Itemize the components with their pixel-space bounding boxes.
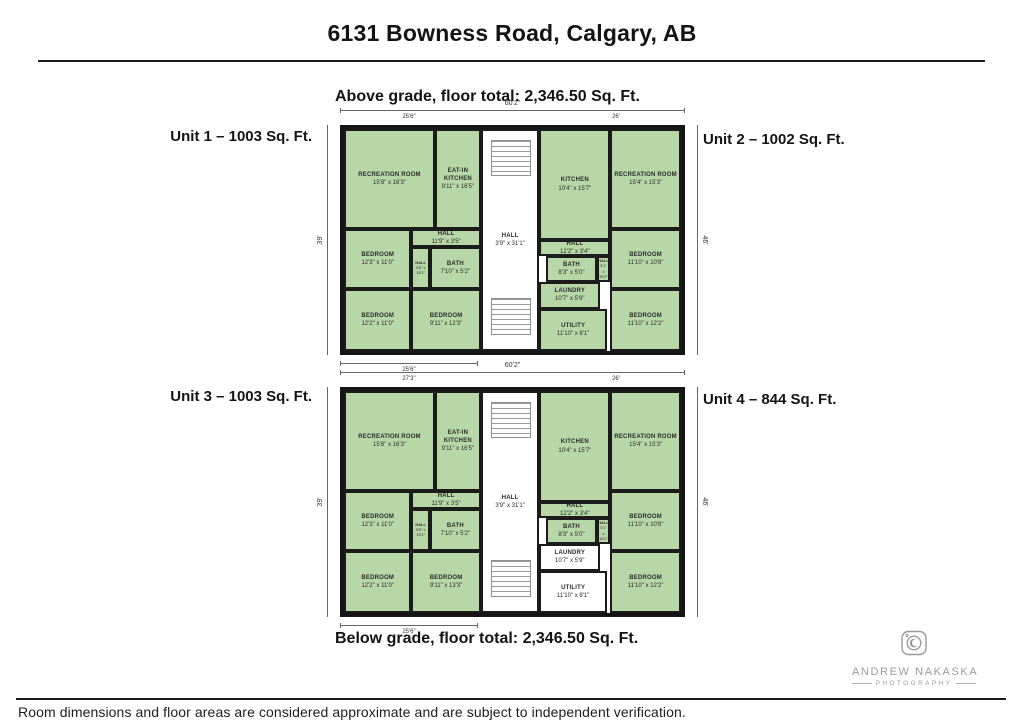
room-dimensions: 10'4" x 15'7" [558,447,591,455]
stairs [491,402,531,438]
dimension-line-left [327,125,328,355]
watermark-subtitle: PHOTOGRAPHY [876,680,953,687]
room-dimensions: 3'9" x 31'1" [495,240,525,248]
room-dimensions: 9'11" x 16'5" [442,183,474,191]
above-grade-floor-plan-drawing: RECREATION ROOM15'8" x 16'3"EAT-IN KITCH… [340,125,685,355]
room-name: HALL [438,492,455,500]
room-name: BEDROOM [361,574,394,582]
room-hall: HALL11'9" x 3'5" [411,229,480,247]
dimension-width-overall: 60'2" [340,100,685,107]
watermark-dash-left [852,683,872,684]
room-dimensions: 15'8" x 16'3" [373,179,406,187]
room-dimensions: 10'7" x 5'9" [555,295,585,303]
room-dimensions: 12'2" x 3'4" [560,510,590,518]
room-bedroom: BEDROOM11'10" x 10'8" [610,229,681,289]
room-hall: HALL3'1" x 15'2" [597,518,610,545]
photographer-watermark: ANDREW NAKASKA PHOTOGRAPHY [852,628,976,687]
room-bedroom: BEDROOM11'10" x 10'8" [610,491,681,551]
room-utility: UTILITY11'10" x 8'1" [539,309,606,351]
room-dimensions: 15'8" x 16'3" [373,441,406,449]
room-name: HALL [438,230,455,238]
room-name: RECREATION ROOM [614,433,677,441]
room-name: BEDROOM [629,574,662,582]
room-kitchen: KITCHEN10'4" x 15'7" [539,129,610,240]
room-bedroom: BEDROOM12'3" x 11'0" [344,229,411,289]
room-dimensions: 12'2" x 11'0" [361,320,393,328]
room-dimensions: 7'10" x 5'2" [441,530,471,538]
room-name: BEDROOM [430,574,463,582]
dimension-line-right [697,125,698,355]
room-name: BATH [563,261,580,269]
room-kitchen: KITCHEN10'4" x 15'7" [539,391,610,502]
room-dimensions: 10'7" x 5'9" [555,557,585,565]
room-utility: UTILITY11'10" x 8'1" [539,571,606,613]
room-bedroom: BEDROOM12'2" x 11'0" [344,551,411,613]
dimension-height-right: 46' [701,235,708,244]
room-bedroom: BEDROOM11'10" x 12'2" [610,551,681,613]
room-bedroom: BEDROOM11'10" x 12'2" [610,289,681,351]
dimension-width-overall: 60'2" [340,362,685,369]
stairs [491,560,531,598]
room-name: KITCHEN [561,438,589,446]
room-dimensions: 12'2" x 3'4" [560,248,590,256]
room-name: HALL [502,494,519,502]
room-dimensions: 9'11" x 12'3" [430,320,462,328]
room-recreation-room: RECREATION ROOM15'4" x 15'3" [610,391,681,491]
room-eat-in-kitchen: EAT-IN KITCHEN9'11" x 16'5" [435,129,481,229]
unit-1-label: Unit 1 – 1003 Sq. Ft. [120,128,312,145]
room-dimensions: 7'10" x 5'2" [441,268,471,276]
room-laundry: LAUNDRY10'7" x 5'9" [539,544,600,571]
room-dimensions: 11'10" x 10'8" [628,521,664,529]
room-name: HALL [566,502,583,510]
room-hall: HALL3'1" x 15'2" [597,256,610,283]
room-name: BATH [447,260,464,268]
header-divider [38,60,985,62]
room-dimensions: 11'10" x 12'2" [628,582,664,590]
room-name: BEDROOM [629,251,662,259]
room-dimensions: 9'11" x 16'5" [442,445,474,453]
room-bath: BATH8'3" x 5'0" [546,256,597,283]
room-dimensions: 9'11" x 13'3" [430,582,462,590]
below-grade-plan: 60'2" 27'3" 26' 39' 46' 25'6" RECREATION… [340,387,685,617]
room-name: EAT-IN KITCHEN [437,429,479,445]
room-name: HALL [566,240,583,248]
room-bedroom: BEDROOM9'11" x 13'3" [411,551,480,613]
room-dimensions: 12'2" x 11'0" [361,582,393,590]
dimension-line-left [327,387,328,617]
room-bath: BATH7'10" x 5'2" [430,247,481,289]
unit-4-label: Unit 4 – 844 Sq. Ft. [703,391,836,408]
dimension-line-bottom [340,625,478,626]
watermark-dash-right [956,683,976,684]
room-name: BEDROOM [629,513,662,521]
room-dimensions: 15'4" x 15'3" [629,441,662,449]
room-name: BEDROOM [629,312,662,320]
room-name: UTILITY [561,584,585,592]
room-dimensions: 12'3" x 11'0" [361,259,393,267]
room-name: BEDROOM [361,251,394,259]
room-dimensions: 11'9" x 3'5" [432,500,461,508]
room-bath: BATH7'10" x 5'2" [430,509,481,551]
dimension-height-left: 39' [317,497,324,506]
room-dimensions: 8'3" x 5'0" [558,269,584,277]
room-dimensions: 11'10" x 10'8" [628,259,664,267]
room-name: LAUNDRY [555,287,586,295]
room-name: EAT-IN KITCHEN [437,167,479,183]
room-dimensions: 12'3" x 11'0" [361,521,393,529]
room-name: LAUNDRY [555,549,586,557]
room-name: HALL [502,232,519,240]
room-recreation-room: RECREATION ROOM15'4" x 15'3" [610,129,681,229]
room-hall: HALL11'9" x 3'5" [411,491,480,509]
room-dimensions: 11'10" x 12'2" [628,320,664,328]
disclaimer-text: Room dimensions and floor areas are cons… [18,704,686,720]
dimension-width-right-segment: 26' [547,376,685,382]
room-dimensions: 11'9" x 3'5" [432,238,461,246]
page-title: 6131 Bowness Road, Calgary, AB [0,20,1024,47]
room-hall: HALL3'6" x 15'1" [411,247,430,289]
room-bedroom: BEDROOM9'11" x 12'3" [411,289,480,351]
room-bedroom: BEDROOM12'3" x 11'0" [344,491,411,551]
dimension-height-left: 39' [317,235,324,244]
room-dimensions: 11'10" x 8'1" [557,330,589,338]
above-grade-plan: 60'2" 25'6" 26' 39' 46' 25'6" RECREATION… [340,125,685,355]
room-name: BEDROOM [361,312,394,320]
room-dimensions: 3'6" x 15'1" [413,527,428,538]
dimension-line-top [340,372,685,373]
footer-divider [16,698,1006,700]
room-dimensions: 3'6" x 15'1" [413,265,428,276]
room-laundry: LAUNDRY10'7" x 5'9" [539,282,600,309]
room-name: BEDROOM [430,312,463,320]
room-dimensions: 8'3" x 5'0" [558,531,584,539]
room-name: KITCHEN [561,176,589,184]
room-hall: HALL12'2" x 3'4" [539,502,610,518]
room-dimensions: 15'4" x 15'3" [629,179,662,187]
dimension-width-right-segment: 26' [547,114,685,120]
room-name: BEDROOM [361,513,394,521]
room-bath: BATH8'3" x 5'0" [546,518,597,545]
room-dimensions: 11'10" x 8'1" [557,592,589,600]
floor-plan-page: 6131 Bowness Road, Calgary, AB Above gra… [0,0,1024,723]
room-recreation-room: RECREATION ROOM15'8" x 16'3" [344,129,435,229]
dimension-width-left-segment: 25'6" [340,114,478,120]
room-hall: HALL3'6" x 15'1" [411,509,430,551]
dimension-width-left-segment: 27'3" [340,376,478,382]
dimension-line-top [340,110,685,111]
room-bedroom: BEDROOM12'2" x 11'0" [344,289,411,351]
stairs [491,298,531,336]
room-recreation-room: RECREATION ROOM15'8" x 16'3" [344,391,435,491]
watermark-name: ANDREW NAKASKA [852,666,976,678]
dimension-line-right [697,387,698,617]
room-dimensions: 3'1" x 15'2" [599,263,608,279]
room-name: RECREATION ROOM [358,171,421,179]
room-name: RECREATION ROOM [614,171,677,179]
room-hall: HALL12'2" x 3'4" [539,240,610,256]
stairs [491,140,531,176]
camera-icon [897,628,931,663]
room-dimensions: 10'4" x 15'7" [558,185,591,193]
room-dimensions: 3'1" x 15'2" [599,525,608,541]
room-eat-in-kitchen: EAT-IN KITCHEN9'11" x 16'5" [435,391,481,491]
room-name: BATH [563,523,580,531]
room-name: UTILITY [561,322,585,330]
below-grade-floor-plan-drawing: RECREATION ROOM15'8" x 16'3"EAT-IN KITCH… [340,387,685,617]
room-name: BATH [447,522,464,530]
room-dimensions: 3'9" x 31'1" [495,502,525,510]
unit-3-label: Unit 3 – 1003 Sq. Ft. [120,388,312,405]
dimension-height-right: 46' [701,497,708,506]
room-name: RECREATION ROOM [358,433,421,441]
dimension-width-bottom-segment: 25'6" [340,629,478,635]
unit-2-label: Unit 2 – 1002 Sq. Ft. [703,131,845,148]
